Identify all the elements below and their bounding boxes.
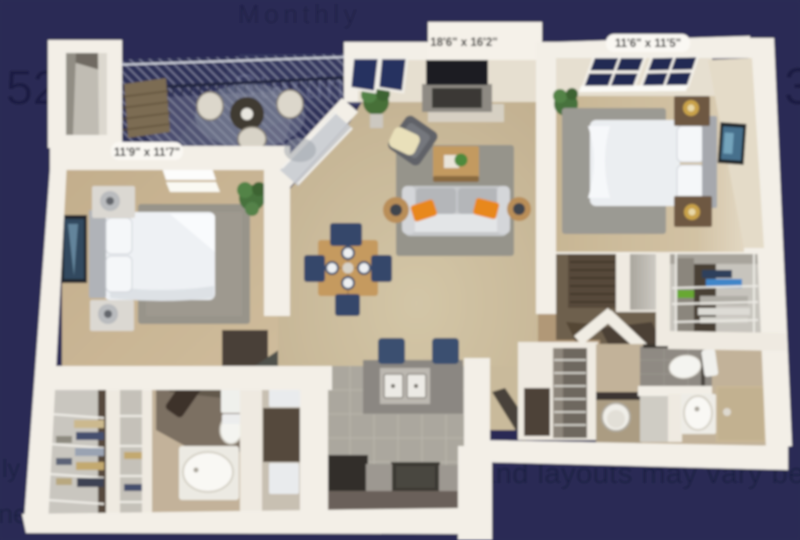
svg-text:18'6" x 16'2": 18'6" x 16'2" [430,37,498,49]
svg-text:11'9" x 11'7": 11'9" x 11'7" [114,147,180,159]
svg-text:ly: ly [2,455,21,483]
svg-text:11'6" x 11'5": 11'6" x 11'5" [615,38,681,50]
svg-text:3: 3 [784,58,800,116]
svg-text:Monthly: Monthly [238,0,361,29]
